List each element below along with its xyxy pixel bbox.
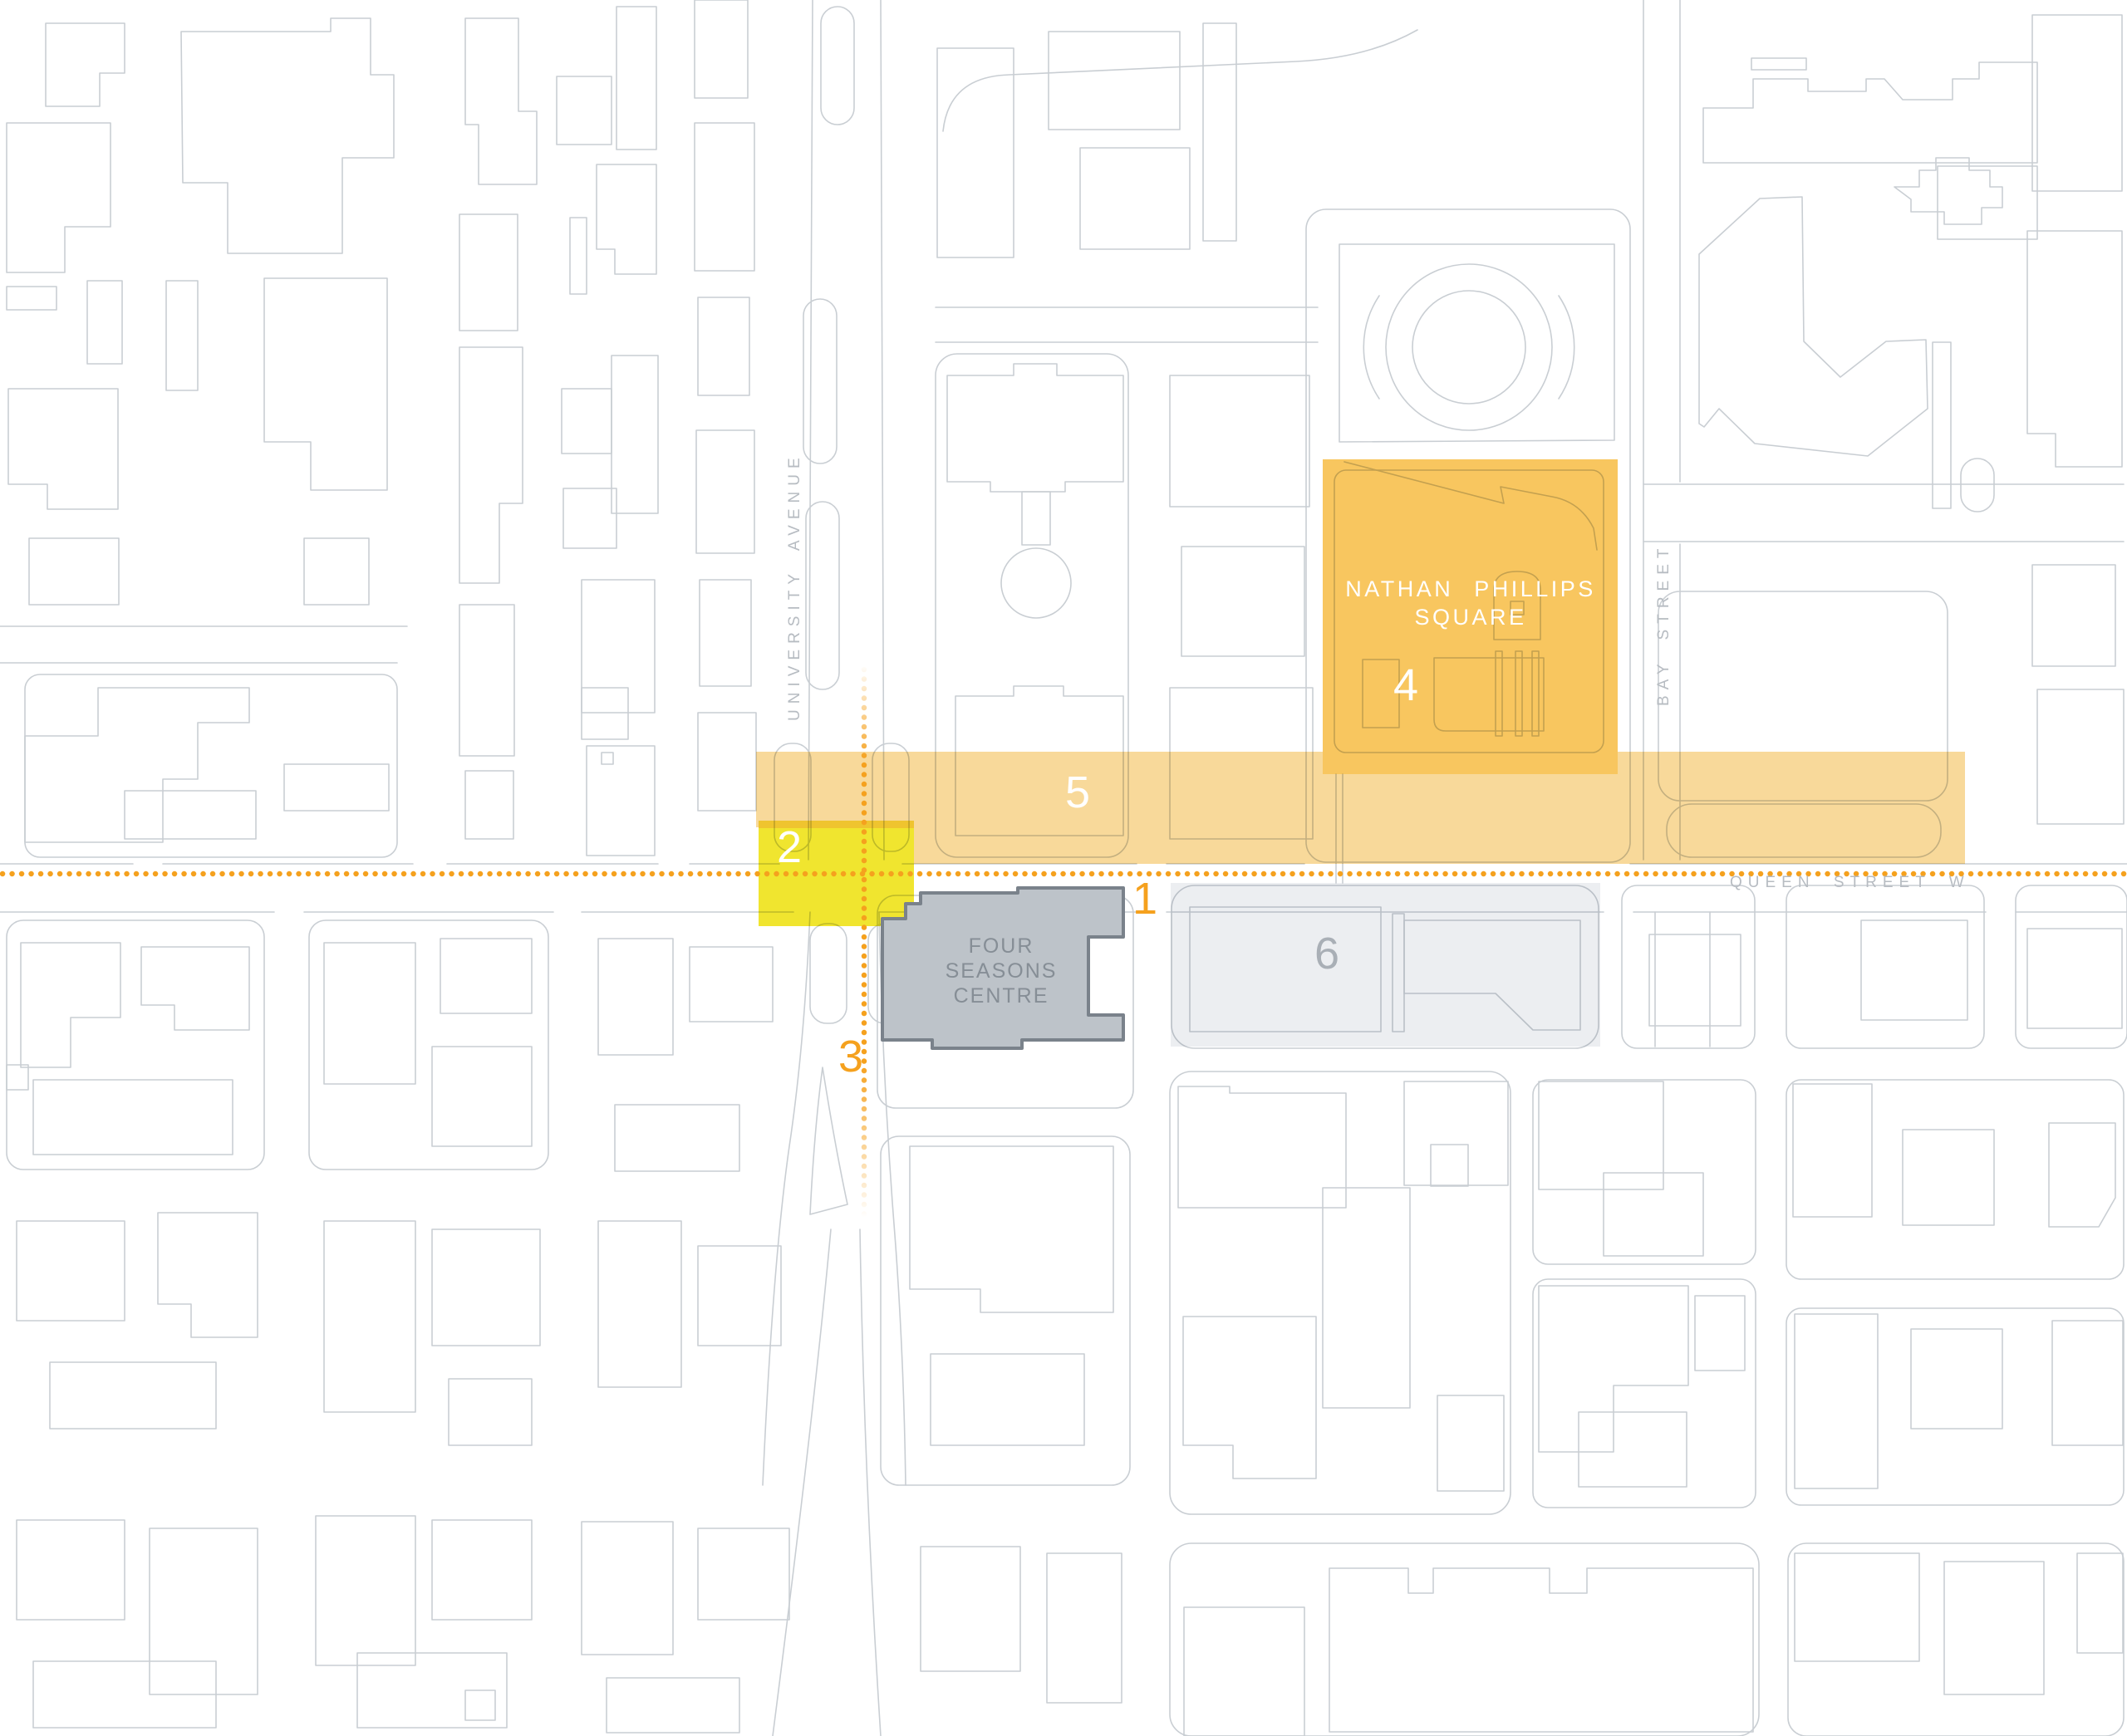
site-map: UNIVERSITY AVENUE BAY STREET QUEEN STREE…	[0, 0, 2127, 1736]
zone-marker-1: 1	[1132, 874, 1157, 924]
zone-marker-2: 2	[777, 822, 802, 872]
nathan-phillips-square-label-line1: NATHAN PHILLIPS	[1345, 576, 1596, 601]
zone-marker-3: 3	[838, 1032, 863, 1081]
building-outlines	[0, 0, 2127, 1736]
zone-marker-6: 6	[1314, 929, 1339, 978]
nathan-phillips-square-label-line2: SQUARE	[1414, 605, 1526, 630]
map-canvas: UNIVERSITY AVENUE BAY STREET QUEEN STREE…	[0, 0, 2127, 1736]
four-seasons-centre-label-line1: FOUR	[969, 934, 1034, 958]
zone-6	[1171, 883, 1600, 1047]
street-label-queen-street-w: QUEEN STREET W	[1730, 874, 1970, 891]
street-label-bay-street: BAY STREET	[1655, 543, 1673, 707]
four-seasons-centre-label-line3: CENTRE	[954, 984, 1049, 1008]
four-seasons-centre-label-line2: SEASONS	[946, 959, 1058, 983]
zone-marker-4: 4	[1393, 660, 1418, 710]
zone-marker-5: 5	[1065, 767, 1090, 817]
street-label-university-avenue: UNIVERSITY AVENUE	[786, 452, 803, 721]
